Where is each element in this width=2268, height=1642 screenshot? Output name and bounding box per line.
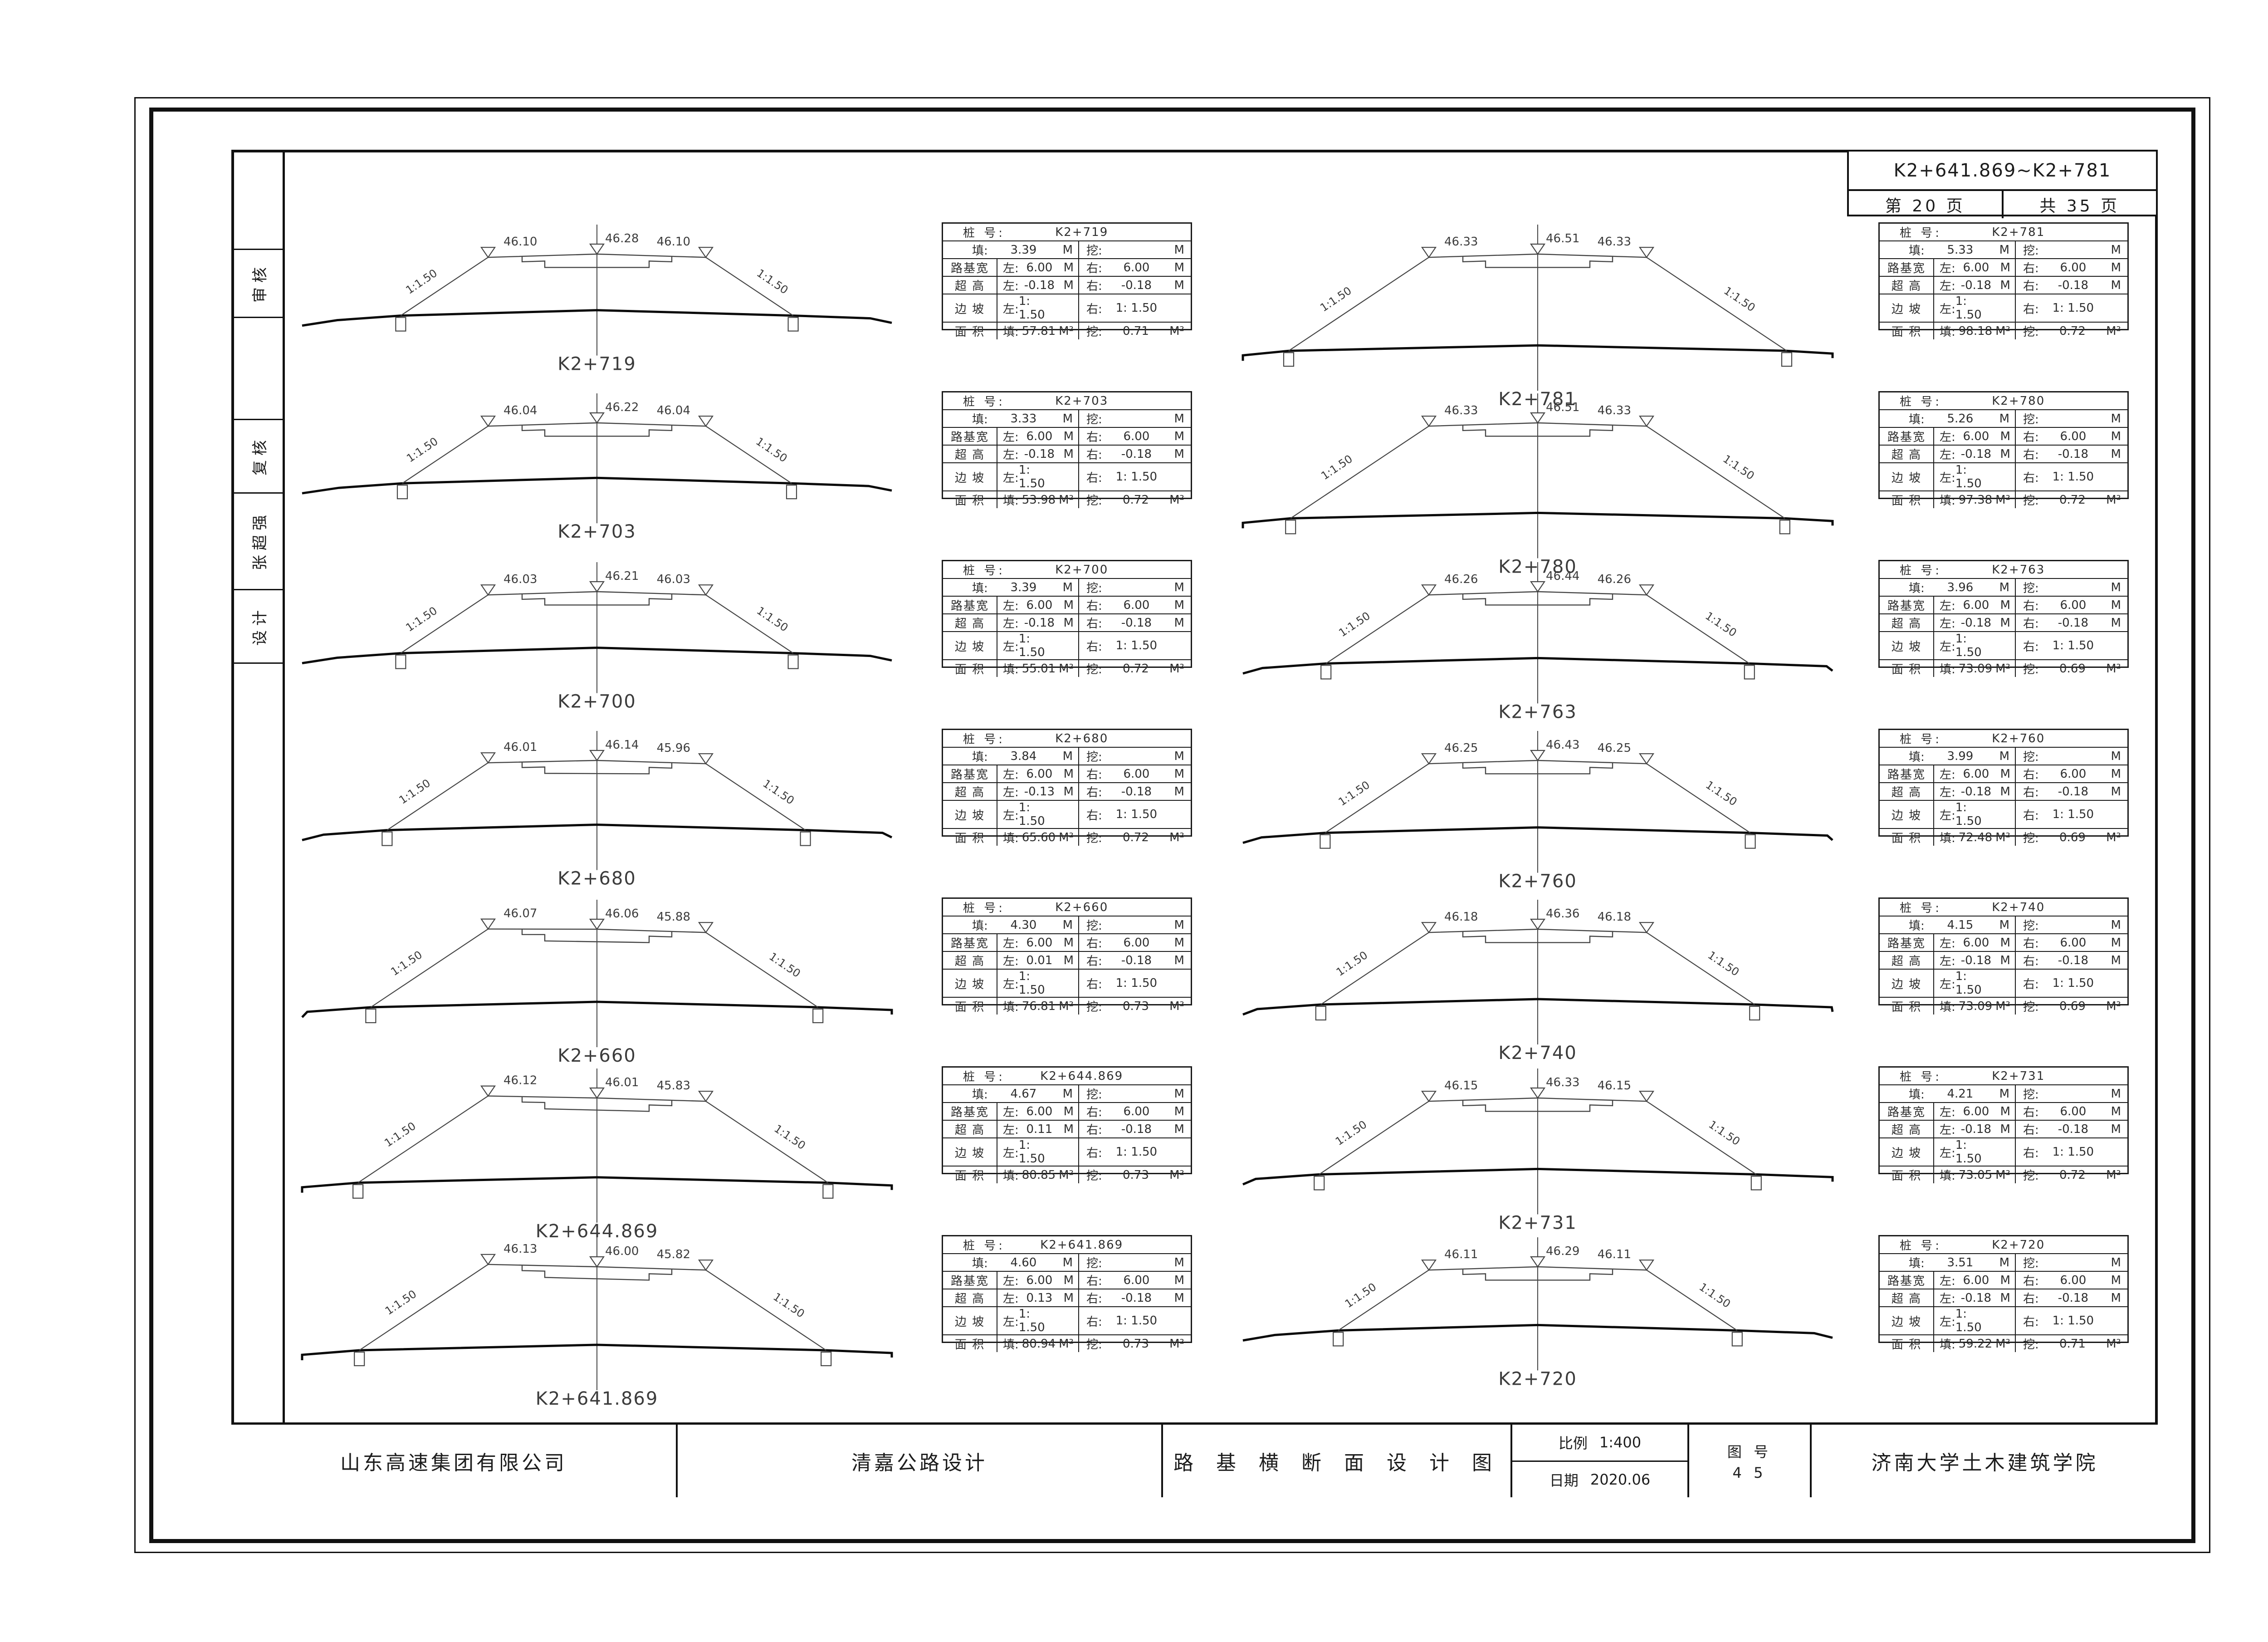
- row-label: 超 高: [943, 783, 997, 800]
- slope-ratio-right: 1:1.50: [1706, 949, 1741, 979]
- fill-unit: M: [1996, 412, 2009, 426]
- row-label: 面 积: [1880, 829, 1934, 846]
- table-row-area: 面 积 填: 55.01 M² 挖: 0.72 M²: [943, 659, 1191, 677]
- right-value: 6.00: [1123, 1105, 1149, 1118]
- left-value: 6.00: [1026, 767, 1052, 781]
- section-data-table: 桩 号: K2+780 填: 5.26 M 挖: M 路基宽 左: 6.00 M…: [1878, 391, 2129, 499]
- label-text: 路基宽: [1887, 934, 1926, 951]
- row-label: 面 积: [1880, 1167, 1934, 1183]
- level-marker-center: [590, 244, 604, 254]
- table-row-roadbed-width: 路基宽 左: 6.00 M 右: 6.00 M: [943, 1102, 1191, 1120]
- right-cell: 右: 6.00 M: [1079, 259, 1191, 276]
- table-row-station: 桩 号: K2+700: [943, 561, 1191, 578]
- cross-section: 46.26 46.44 46.26 1:1.50 1:1.50 K2+763: [1243, 560, 1833, 755]
- right-cell: 右: 6.00 M: [2016, 259, 2127, 276]
- cut-unit: M: [1171, 581, 1184, 594]
- right-value: 6.00: [2060, 936, 2086, 950]
- area-cut-value: 0.73: [1123, 1168, 1149, 1182]
- elevation-left: 46.13: [503, 1242, 537, 1256]
- left-value: 6.00: [1963, 261, 1989, 274]
- left-value: 0.01: [1026, 954, 1052, 967]
- table-row-fill-cut: 填: 3.84 M 挖: M: [943, 747, 1191, 765]
- fill-unit: M: [1059, 581, 1073, 594]
- right-cell: 右: 1: 1.50: [2016, 970, 2127, 997]
- left-label: 左:: [1940, 428, 1955, 445]
- right-value: 1: 1.50: [1116, 639, 1157, 652]
- fill-cell: 填: 4.30 M: [943, 917, 1079, 933]
- slope-ratio-left: 1:1.50: [1334, 949, 1370, 979]
- level-marker-right: [699, 1091, 713, 1101]
- table-row-roadbed-width: 路基宽 左: 6.00 M 右: 6.00 M: [1880, 1271, 2127, 1289]
- cut-label: 挖:: [2023, 323, 2039, 339]
- row-label: 超 高: [1880, 1121, 1934, 1137]
- area-cut-value: 0.69: [2059, 1000, 2086, 1013]
- right-cell: 右: -0.18 M: [2016, 952, 2127, 969]
- left-value: 1: 1.50: [1019, 1138, 1060, 1166]
- left-value: 1: 1.50: [1955, 1138, 1997, 1166]
- left-cell: 左: 6.00 M: [1934, 259, 2016, 276]
- slope-right: [1647, 426, 1785, 518]
- fill-unit: M: [1059, 918, 1073, 932]
- label-text: 边 坡: [1892, 1313, 1921, 1329]
- table-row-superelevation: 超 高 左: -0.18 M 右: -0.18 M: [943, 445, 1191, 462]
- fill-label: 填:: [972, 1254, 988, 1271]
- level-marker-center: [1531, 1257, 1545, 1267]
- left-value: 6.00: [1026, 936, 1052, 950]
- row-label: 边 坡: [1880, 463, 1934, 490]
- right-value: -0.18: [1121, 1291, 1152, 1305]
- slope-ratio-right: 1:1.50: [753, 435, 789, 465]
- left-label: 左:: [1003, 952, 1019, 969]
- right-value: 1: 1.50: [2053, 1145, 2094, 1159]
- table-row-side-slope: 边 坡 左: 1: 1.50 右: 1: 1.50: [943, 969, 1191, 997]
- table-row-station: 桩 号: K2+660: [943, 899, 1191, 916]
- cut-label: 挖:: [1086, 1167, 1102, 1183]
- left-value: -0.18: [1024, 447, 1055, 461]
- row-label: 边 坡: [943, 801, 997, 828]
- row-label: 路基宽: [1880, 1103, 1934, 1120]
- toe-marker-right: [788, 655, 798, 669]
- right-cell: 右: 6.00 M: [2016, 1272, 2127, 1289]
- left-cell: 左: -0.18 M: [1934, 614, 2016, 631]
- fill-label: 填:: [1940, 998, 1955, 1015]
- left-unit: M: [1997, 279, 2010, 292]
- cut-label: 挖:: [1086, 1085, 1102, 1102]
- right-label: 右:: [2023, 637, 2039, 654]
- row-label: 超 高: [1880, 614, 1934, 631]
- cross-section: 46.33 46.51 46.33 1:1.50 1:1.50 K2+781: [1243, 222, 1833, 417]
- fill-label: 填:: [1003, 323, 1019, 339]
- right-cell: 右: -0.18 M: [2016, 1289, 2127, 1306]
- area-fill-cell: 填: 73.09 M²: [1934, 998, 2016, 1015]
- table-row-station: 桩 号: K2+763: [1880, 561, 2127, 578]
- left-unit: M: [1060, 616, 1074, 630]
- left-value: 1: 1.50: [1019, 294, 1060, 322]
- left-cell: 左: 6.00 M: [1934, 428, 2016, 445]
- left-unit: M: [1060, 447, 1074, 461]
- area-fill-value: 55.01: [1022, 662, 1056, 676]
- right-cell: 右: 6.00 M: [2016, 934, 2127, 951]
- row-label: 边 坡: [1880, 801, 1934, 828]
- table-row-roadbed-width: 路基宽 左: 6.00 M 右: 6.00 M: [943, 1271, 1191, 1289]
- level-marker-left: [481, 585, 495, 595]
- table-row-area: 面 积 填: 98.18 M² 挖: 0.72 M²: [1880, 322, 2127, 339]
- left-unit: M: [1997, 936, 2010, 950]
- station-value: K2+641.869: [1040, 1238, 1123, 1252]
- right-unit: M: [2107, 430, 2121, 443]
- cross-section: 46.07 46.06 45.88 1:1.50 1:1.50 K2+660: [302, 897, 892, 1093]
- slope-left: [359, 1265, 488, 1350]
- right-label: 右:: [2023, 469, 2039, 485]
- fill-value: 3.51: [1947, 1256, 1973, 1269]
- slope-left: [1289, 257, 1429, 351]
- table-row-superelevation: 超 高 左: 0.13 M 右: -0.18 M: [943, 1289, 1191, 1306]
- fill-cell: 填: 3.96 M: [1880, 579, 2016, 596]
- left-cell: 左: -0.13 M: [997, 783, 1079, 800]
- table-row-fill-cut: 填: 5.33 M 挖: M: [1880, 240, 2127, 258]
- right-label: 右:: [1086, 765, 1102, 782]
- fill-label: 填:: [1940, 829, 1955, 846]
- table-row-area: 面 积 填: 97.38 M² 挖: 0.72 M²: [1880, 490, 2127, 508]
- fill-cell: 填: 5.26 M: [1880, 410, 2016, 427]
- right-unit: M: [2107, 447, 2121, 461]
- right-unit: M: [1171, 1274, 1184, 1287]
- left-label: 左:: [1003, 446, 1019, 462]
- left-value: -0.18: [1961, 616, 1991, 630]
- section-data-table: 桩 号: K2+740 填: 4.15 M 挖: M 路基宽 左: 6.00 M…: [1878, 897, 2129, 1005]
- unit: M²: [2106, 324, 2121, 338]
- level-marker-center: [590, 1088, 604, 1098]
- fill-unit: M: [1996, 750, 2009, 763]
- cross-section-svg: 46.13 46.00 45.82 1:1.50 1:1.50 K2+641.8…: [302, 1235, 892, 1430]
- table-row-side-slope: 边 坡 左: 1: 1.50 右: 1: 1.50: [1880, 631, 2127, 659]
- label-text: 超 高: [1892, 277, 1921, 294]
- fill-label: 填:: [1940, 660, 1955, 677]
- left-label: 左:: [1940, 1272, 1955, 1289]
- area-fill-value: 97.38: [1959, 493, 1992, 507]
- table-row-superelevation: 超 高 左: -0.13 M 右: -0.18 M: [943, 782, 1191, 800]
- left-cell: 左: 6.00 M: [997, 259, 1079, 276]
- right-cell: 右: -0.18 M: [1079, 614, 1191, 631]
- toe-marker-right: [1750, 1006, 1760, 1020]
- cut-label: 挖:: [1086, 748, 1102, 765]
- toe-marker-left: [354, 1352, 364, 1366]
- right-unit: M: [1171, 1291, 1184, 1305]
- station-label: K2+731: [1498, 1212, 1577, 1233]
- fill-cell: 填: 4.21 M: [1880, 1085, 2016, 1102]
- fill-label: 填:: [1909, 241, 1925, 258]
- left-value: 6.00: [1026, 1274, 1052, 1287]
- row-label: 边 坡: [943, 1307, 997, 1334]
- cut-label: 挖:: [1086, 917, 1102, 933]
- right-cell: 右: 6.00 M: [1079, 597, 1191, 613]
- area-cut-cell: 挖: 0.72 M²: [2016, 1167, 2127, 1183]
- level-marker-left: [481, 753, 495, 763]
- left-value: 0.11: [1026, 1122, 1052, 1136]
- table-row-roadbed-width: 路基宽 左: 6.00 M 右: 6.00 M: [943, 258, 1191, 276]
- cut-label: 挖:: [1086, 1254, 1102, 1271]
- elevation-left: 46.33: [1444, 404, 1478, 417]
- right-value: -0.18: [1121, 447, 1152, 461]
- station-key: 桩 号:: [1900, 1068, 1942, 1084]
- fill-label: 填:: [1003, 1335, 1019, 1352]
- right-value: 6.00: [1123, 1274, 1149, 1287]
- toe-marker-left: [1320, 835, 1330, 848]
- level-marker-right: [699, 585, 713, 595]
- fill-unit: M: [1996, 1087, 2009, 1101]
- slope-left: [1290, 426, 1429, 518]
- cut-cell: 挖: M: [2016, 410, 2127, 427]
- left-label: 左:: [1940, 469, 1955, 485]
- fill-label: 填:: [972, 1085, 988, 1102]
- slope-ratio-right: 1:1.50: [767, 950, 802, 980]
- station-key: 桩 号:: [1900, 730, 1942, 747]
- right-unit: M: [2107, 616, 2121, 630]
- station-key: 桩 号:: [1900, 224, 1942, 240]
- area-fill-value: 80.94: [1022, 1337, 1056, 1351]
- label-text: 路基宽: [1887, 428, 1926, 445]
- level-marker-left: [1422, 1260, 1436, 1270]
- elevation-center: 46.43: [1546, 738, 1579, 752]
- left-value: 6.00: [1963, 936, 1989, 950]
- area-cut-value: 0.72: [2059, 1168, 2086, 1182]
- label-text: 边 坡: [955, 469, 985, 485]
- label-text: 路基宽: [951, 428, 989, 445]
- right-label: 右:: [2023, 783, 2039, 800]
- row-label: 面 积: [943, 660, 997, 677]
- level-marker-right: [699, 754, 713, 764]
- right-unit: M: [1171, 1105, 1184, 1118]
- fill-value: 3.33: [1010, 412, 1036, 426]
- right-label: 右:: [2023, 1272, 2039, 1289]
- unit: M²: [1169, 1000, 1184, 1013]
- left-unit: M: [1060, 767, 1074, 781]
- table-row-side-slope: 边 坡 左: 1: 1.50 右: 1: 1.50: [943, 294, 1191, 322]
- level-marker-right: [1640, 754, 1653, 764]
- area-cut-cell: 挖: 0.69 M²: [2016, 829, 2127, 846]
- row-label: 边 坡: [1880, 632, 1934, 659]
- level-marker-center: [1531, 919, 1545, 929]
- label-text: 路基宽: [1887, 765, 1926, 782]
- level-marker-left: [1422, 247, 1436, 257]
- level-marker-right: [699, 1260, 713, 1270]
- area-fill-value: 80.85: [1022, 1168, 1056, 1182]
- right-value: 1: 1.50: [2053, 808, 2094, 821]
- area-fill-cell: 填: 76.81 M²: [997, 998, 1079, 1015]
- right-label: 右:: [2023, 259, 2039, 276]
- toe-marker-left: [1284, 353, 1294, 366]
- cross-section: 46.18 46.36 46.18 1:1.50 1:1.50 K2+740: [1243, 897, 1833, 1093]
- right-value: -0.18: [1121, 954, 1152, 967]
- unit: M²: [1059, 1168, 1074, 1182]
- label-text: 路基宽: [951, 934, 989, 951]
- fill-unit: M: [1996, 581, 2009, 594]
- fill-label: 填:: [1909, 748, 1925, 765]
- cut-cell: 挖: M: [1079, 410, 1191, 427]
- toe-marker-left: [397, 485, 407, 499]
- station-value: K2+644.869: [1040, 1069, 1123, 1083]
- table-row-fill-cut: 填: 4.60 M 挖: M: [943, 1253, 1191, 1271]
- right-unit: M: [1171, 1122, 1184, 1136]
- table-row-area: 面 积 填: 80.94 M² 挖: 0.73 M²: [943, 1334, 1191, 1352]
- table-row-superelevation: 超 高 左: -0.18 M 右: -0.18 M: [943, 276, 1191, 294]
- elevation-left: 46.10: [503, 235, 537, 249]
- left-cell: 左: 6.00 M: [1934, 765, 2016, 782]
- unit: M²: [1059, 662, 1074, 676]
- toe-marker-right: [801, 832, 811, 846]
- cut-label: 挖:: [2023, 1335, 2039, 1352]
- label-text: 边 坡: [1892, 637, 1921, 654]
- right-value: 1: 1.50: [2053, 639, 2094, 652]
- fill-label: 填:: [1909, 1085, 1925, 1102]
- right-value: -0.18: [2058, 1291, 2088, 1305]
- cut-cell: 挖: M: [1079, 579, 1191, 596]
- area-fill-cell: 填: 59.22 M²: [1934, 1335, 2016, 1352]
- cut-unit: M: [2107, 1256, 2121, 1269]
- fill-label: 填:: [1909, 579, 1925, 596]
- area-fill-value: 59.22: [1959, 1337, 1992, 1351]
- area-fill-value: 72.48: [1959, 831, 1992, 844]
- left-unit: M: [1997, 447, 2010, 461]
- fill-unit: M: [1996, 243, 2009, 257]
- area-cut-cell: 挖: 0.69 M²: [2016, 660, 2127, 677]
- table-row-roadbed-width: 路基宽 左: 6.00 M 右: 6.00 M: [1880, 1102, 2127, 1120]
- left-label: 左:: [1940, 259, 1955, 276]
- left-value: 1: 1.50: [1955, 970, 1997, 997]
- left-cell: 左: 6.00 M: [997, 597, 1079, 613]
- slope-ratio-right: 1:1.50: [761, 777, 797, 807]
- fill-cell: 填: 3.33 M: [943, 410, 1079, 427]
- area-fill-cell: 填: 55.01 M²: [997, 660, 1079, 677]
- right-cell: 右: 6.00 M: [1079, 1272, 1191, 1289]
- cross-section: 46.01 46.14 45.96 1:1.50 1:1.50 K2+680: [302, 729, 892, 924]
- area-fill-value: 57.81: [1022, 324, 1056, 338]
- right-unit: M: [1171, 616, 1184, 630]
- level-marker-left: [1422, 922, 1436, 932]
- slope-ratio-left: 1:1.50: [1336, 609, 1372, 639]
- cut-label: 挖:: [1086, 579, 1102, 596]
- section-data-table: 桩 号: K2+703 填: 3.33 M 挖: M 路基宽 左: 6.00 M…: [942, 391, 1192, 499]
- left-value: -0.18: [1961, 447, 1991, 461]
- slope-right: [706, 1270, 826, 1350]
- right-cell: 右: -0.18 M: [2016, 446, 2127, 462]
- slope-ratio-right: 1:1.50: [1703, 609, 1739, 639]
- level-marker-right: [699, 247, 713, 257]
- station-key: 桩 号:: [963, 730, 1005, 747]
- unit: M²: [1995, 831, 2010, 844]
- label-text: 边 坡: [955, 1144, 985, 1161]
- fill-value: 3.84: [1010, 750, 1036, 763]
- fill-label: 填:: [1940, 1335, 1955, 1352]
- left-label: 左:: [1003, 934, 1019, 951]
- left-cell: 左: 6.00 M: [997, 1103, 1079, 1120]
- table-row-roadbed-width: 路基宽 左: 6.00 M 右: 6.00 M: [943, 765, 1191, 782]
- right-label: 右:: [1086, 597, 1102, 613]
- level-marker-center: [1531, 1088, 1545, 1098]
- table-row-roadbed-width: 路基宽 左: 6.00 M 右: 6.00 M: [1880, 427, 2127, 445]
- cross-section-svg: 46.26 46.44 46.26 1:1.50 1:1.50 K2+763: [1243, 560, 1833, 755]
- left-label: 左:: [1940, 446, 1955, 462]
- table-row-station: 桩 号: K2+731: [1880, 1068, 2127, 1084]
- slope-ratio-right: 1:1.50: [1721, 452, 1756, 482]
- fill-unit: M: [1059, 1256, 1073, 1269]
- right-cell: 右: -0.18 M: [2016, 277, 2127, 294]
- cut-unit: M: [2107, 918, 2121, 932]
- left-unit: M: [1060, 954, 1074, 967]
- left-cell: 左: 6.00 M: [1934, 934, 2016, 951]
- right-value: 1: 1.50: [2053, 470, 2094, 484]
- right-label: 右:: [1086, 806, 1102, 823]
- area-cut-value: 0.71: [1123, 324, 1149, 338]
- right-value: 1: 1.50: [2053, 976, 2094, 990]
- label-text: 路基宽: [951, 597, 989, 613]
- cut-label: 挖:: [1086, 829, 1102, 846]
- toe-marker-left: [1316, 1006, 1326, 1020]
- level-marker-right: [1640, 247, 1653, 257]
- elevation-left: 46.12: [503, 1074, 537, 1088]
- right-cell: 右: 1: 1.50: [2016, 632, 2127, 659]
- label-text: 路基宽: [951, 765, 989, 782]
- left-value: 6.00: [1026, 261, 1052, 274]
- unit: M²: [1995, 1337, 2010, 1351]
- left-value: 1: 1.50: [1019, 463, 1060, 490]
- row-label: 超 高: [943, 277, 997, 294]
- right-label: 右:: [1086, 446, 1102, 462]
- unit: M²: [1169, 662, 1184, 676]
- right-value: 1: 1.50: [1116, 1314, 1157, 1328]
- left-label: 左:: [1003, 1272, 1019, 1289]
- row-label: 路基宽: [1880, 428, 1934, 445]
- right-unit: M: [2107, 1105, 2121, 1118]
- cut-label: 挖:: [2023, 998, 2039, 1015]
- left-label: 左:: [1003, 765, 1019, 782]
- row-label: 路基宽: [1880, 1272, 1934, 1289]
- area-fill-cell: 填: 72.48 M²: [1934, 829, 2016, 846]
- cut-unit: M: [2107, 750, 2121, 763]
- cross-section: 46.10 46.28 46.10 1:1.50 1:1.50 K2+719: [302, 222, 892, 417]
- elevation-center: 46.06: [605, 907, 639, 921]
- row-label: 路基宽: [943, 428, 997, 445]
- label-text: 超 高: [955, 277, 985, 294]
- right-cell: 右: 1: 1.50: [2016, 1307, 2127, 1334]
- table-row-area: 面 积 填: 57.81 M² 挖: 0.71 M²: [943, 322, 1191, 339]
- fill-label: 填:: [1940, 323, 1955, 339]
- cross-section: 46.11 46.29 46.11 1:1.50 1:1.50 K2+720: [1243, 1235, 1833, 1430]
- slope-ratio-right: 1:1.50: [771, 1290, 807, 1320]
- table-row-side-slope: 边 坡 左: 1: 1.50 右: 1: 1.50: [1880, 294, 2127, 322]
- area-fill-cell: 填: 73.09 M²: [1934, 660, 2016, 677]
- row-label: 路基宽: [943, 597, 997, 613]
- table-row-superelevation: 超 高 左: -0.18 M 右: -0.18 M: [1880, 951, 2127, 969]
- right-label: 右:: [2023, 428, 2039, 445]
- area-cut-cell: 挖: 0.72 M²: [1079, 829, 1191, 846]
- left-unit: M: [1997, 1105, 2010, 1118]
- right-value: 6.00: [2060, 767, 2086, 781]
- cut-cell: 挖: M: [1079, 748, 1191, 765]
- area-fill-value: 53.98: [1022, 493, 1056, 507]
- left-cell: 左: -0.18 M: [1934, 783, 2016, 800]
- left-label: 左:: [1003, 277, 1019, 294]
- right-cell: 右: 1: 1.50: [1079, 801, 1191, 828]
- right-value: 1: 1.50: [1116, 470, 1157, 484]
- left-cell: 左: 0.01 M: [997, 952, 1079, 969]
- right-label: 右:: [2023, 934, 2039, 951]
- fill-value: 5.26: [1947, 412, 1973, 426]
- station-label: K2+720: [1498, 1368, 1577, 1389]
- unit: M²: [1169, 1168, 1184, 1182]
- table-row-side-slope: 边 坡 左: 1: 1.50 右: 1: 1.50: [1880, 1306, 2127, 1334]
- cut-label: 挖:: [1086, 998, 1102, 1015]
